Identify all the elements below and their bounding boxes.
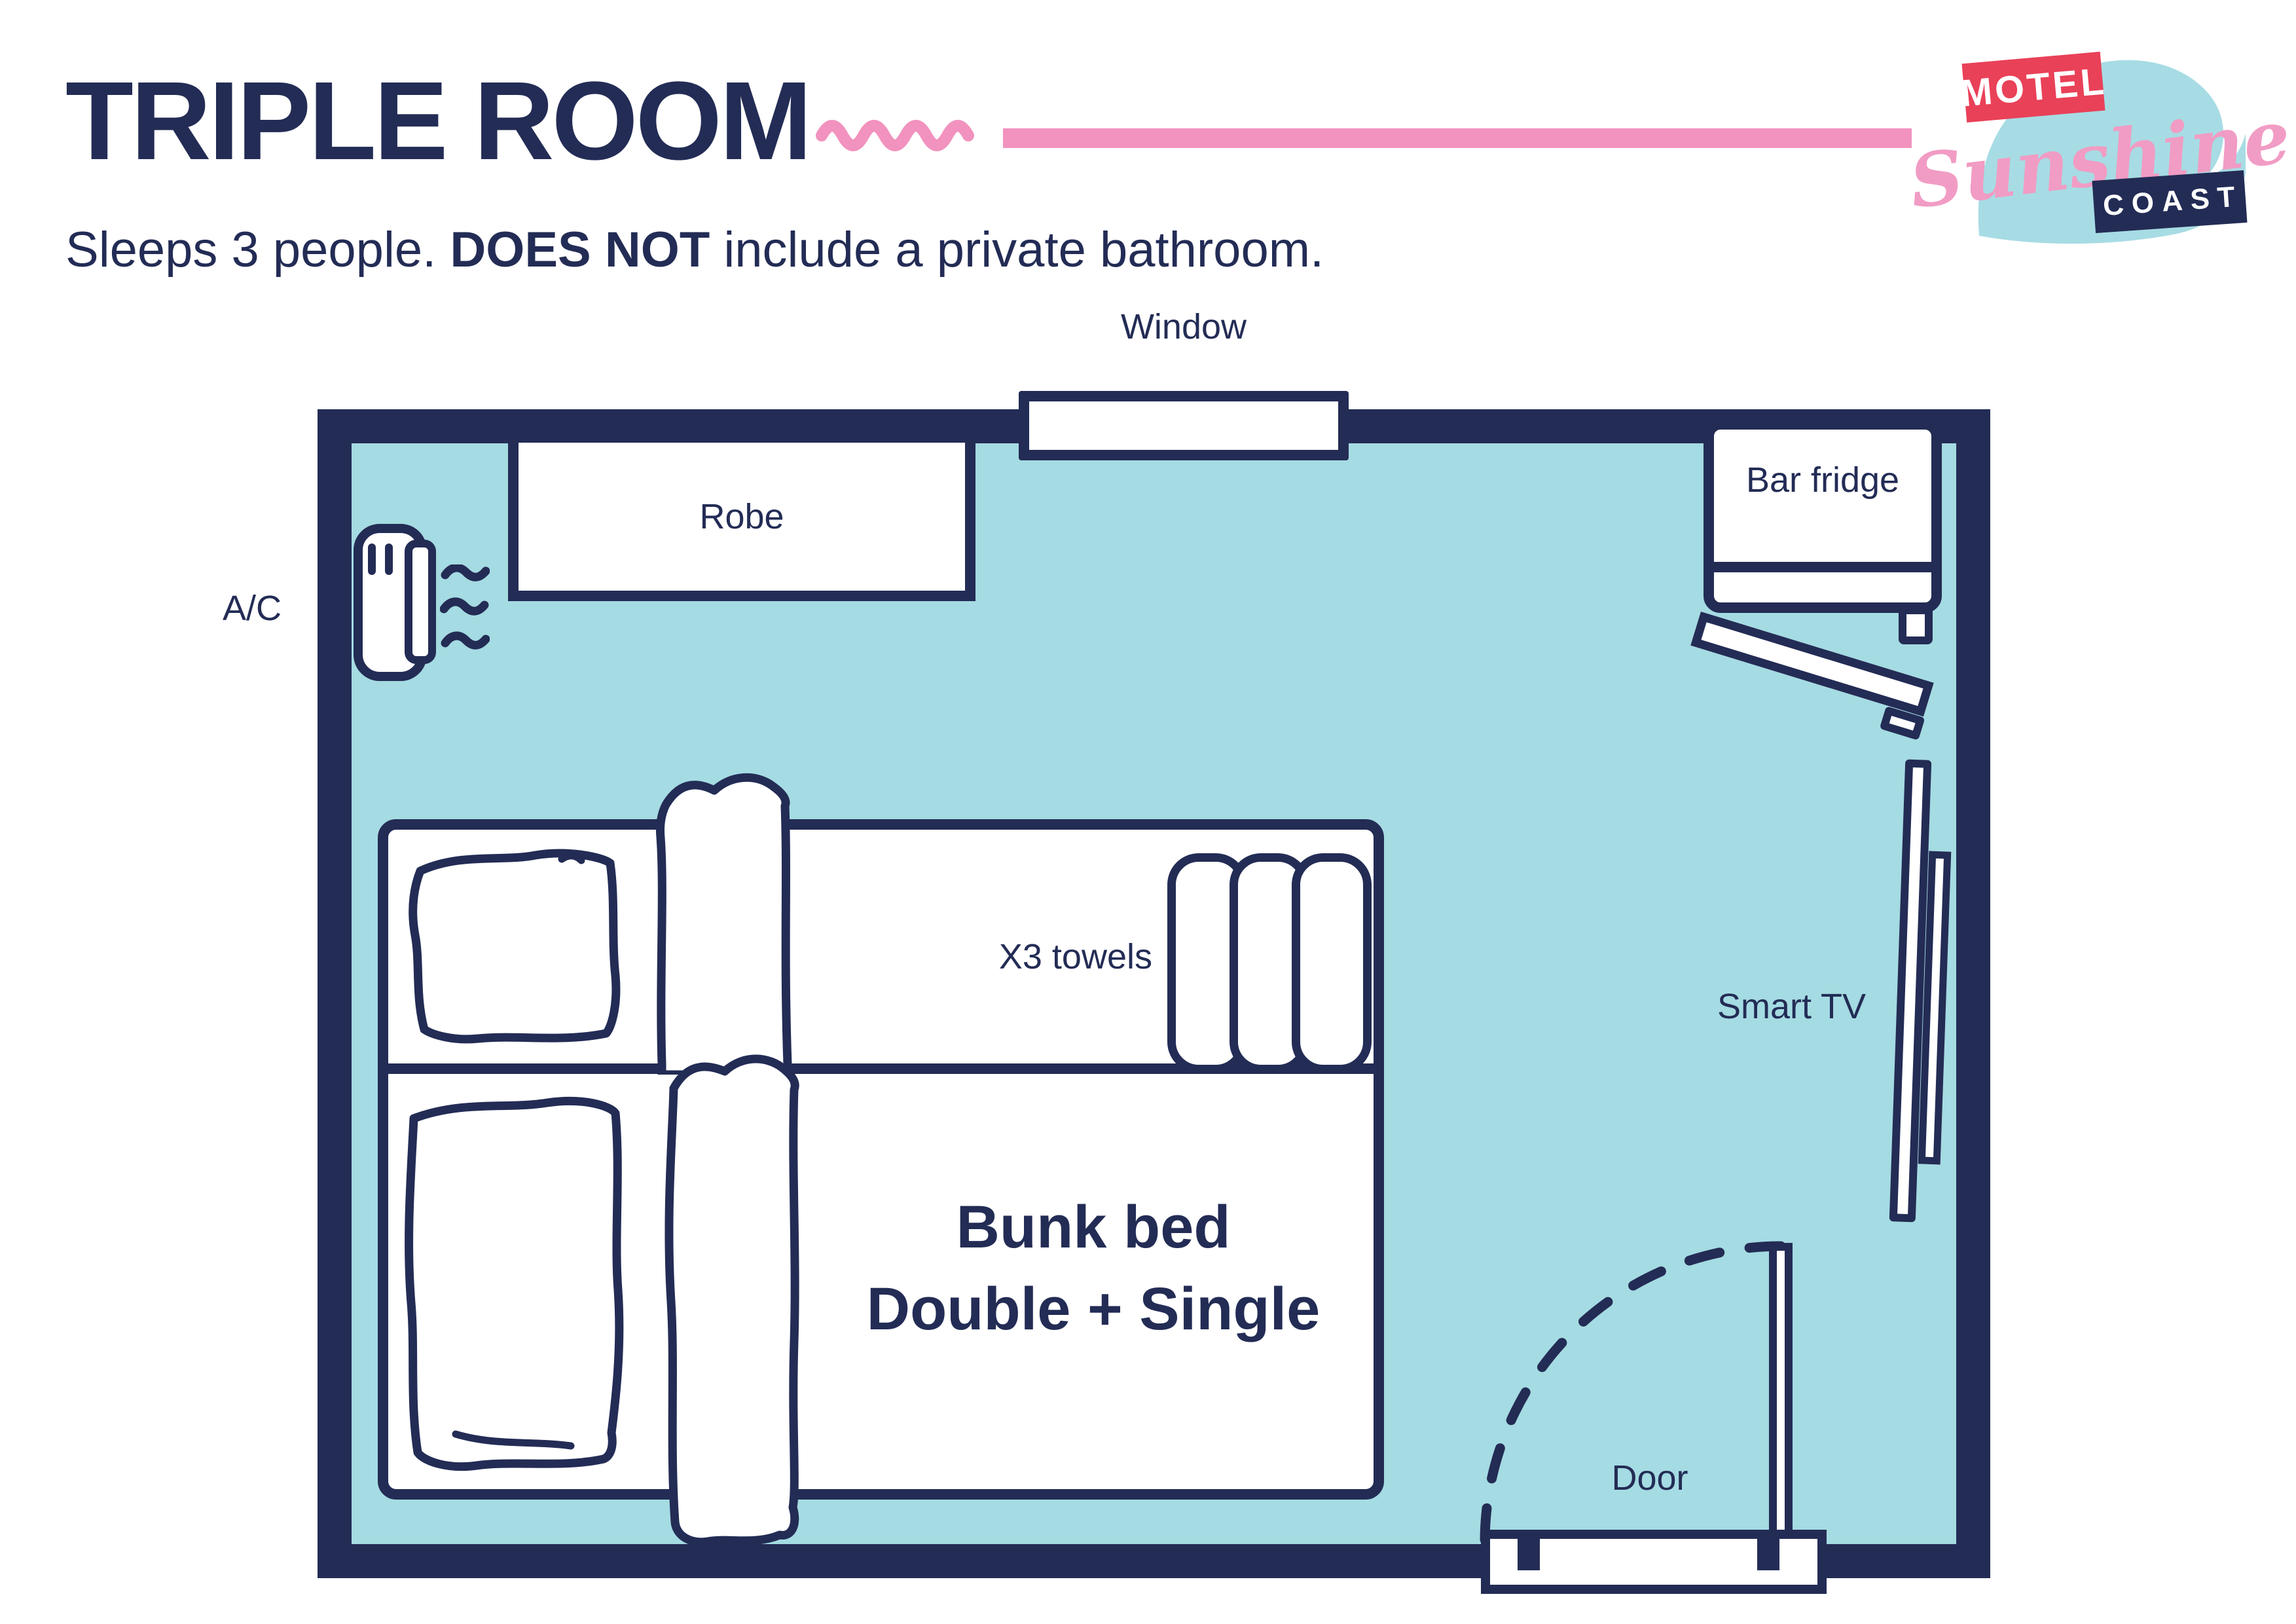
robe-label: Robe xyxy=(699,496,784,537)
pink-rule-line xyxy=(1003,128,1912,148)
poster-canvas: TRIPLE ROOM Sleeps 3 people. DOES NOT in… xyxy=(0,0,2296,1624)
double-bed-pillow-icon xyxy=(390,1087,634,1475)
door-label: Door xyxy=(1558,1458,1741,1498)
page-subtitle: Sleeps 3 people. DOES NOT include a priv… xyxy=(65,221,1324,278)
window-label: Window xyxy=(1085,306,1282,347)
door-jamb-notch-icon xyxy=(1757,1538,1779,1570)
ac-vent-slit-icon xyxy=(368,544,376,575)
bunk-bed-caption-line2: Double + Single xyxy=(766,1268,1421,1350)
pink-squiggle-decoration xyxy=(815,108,975,154)
towel-icon xyxy=(1292,853,1372,1073)
towels-label: X3 towels xyxy=(936,936,1152,977)
single-bed-pillow-icon xyxy=(398,842,630,1048)
smart-tv-label: Smart TV xyxy=(1683,986,1866,1027)
logo-coast-badge: COAST xyxy=(2092,170,2247,233)
bar-fridge: Bar fridge xyxy=(1704,419,1942,613)
ac-vent-slit-icon xyxy=(385,544,393,575)
motel-sunshine-coast-logo: MOTEL Sunshine COAST xyxy=(1954,33,2246,259)
door-jamb-notch-icon xyxy=(1518,1538,1540,1570)
ac-label: A/C xyxy=(118,588,282,629)
ac-outlet-icon xyxy=(405,540,436,664)
robe-wardrobe: Robe xyxy=(508,432,975,601)
door-swing-arc-icon xyxy=(1460,1223,1800,1564)
bunk-bed-caption-line1: Bunk bed xyxy=(766,1187,1421,1268)
door-leaf-icon xyxy=(1769,1243,1793,1539)
page-title: TRIPLE ROOM xyxy=(65,65,810,177)
subtitle-emphasis: DOES NOT xyxy=(450,222,710,278)
bunk-bed-caption: Bunk bed Double + Single xyxy=(766,1187,1421,1350)
airflow-waves-icon xyxy=(440,564,490,663)
fridge-door-seam xyxy=(1704,562,1942,572)
bar-fridge-label: Bar fridge xyxy=(1746,460,1899,500)
subtitle-part3: include a private bathroom. xyxy=(710,222,1324,278)
single-bed-blanket-icon xyxy=(650,762,797,1075)
window xyxy=(1019,391,1349,460)
subtitle-part1: Sleeps 3 people. xyxy=(65,222,450,278)
double-bed-blanket-icon xyxy=(657,1040,807,1547)
fridge-hinge-tab-icon xyxy=(1899,606,1933,644)
